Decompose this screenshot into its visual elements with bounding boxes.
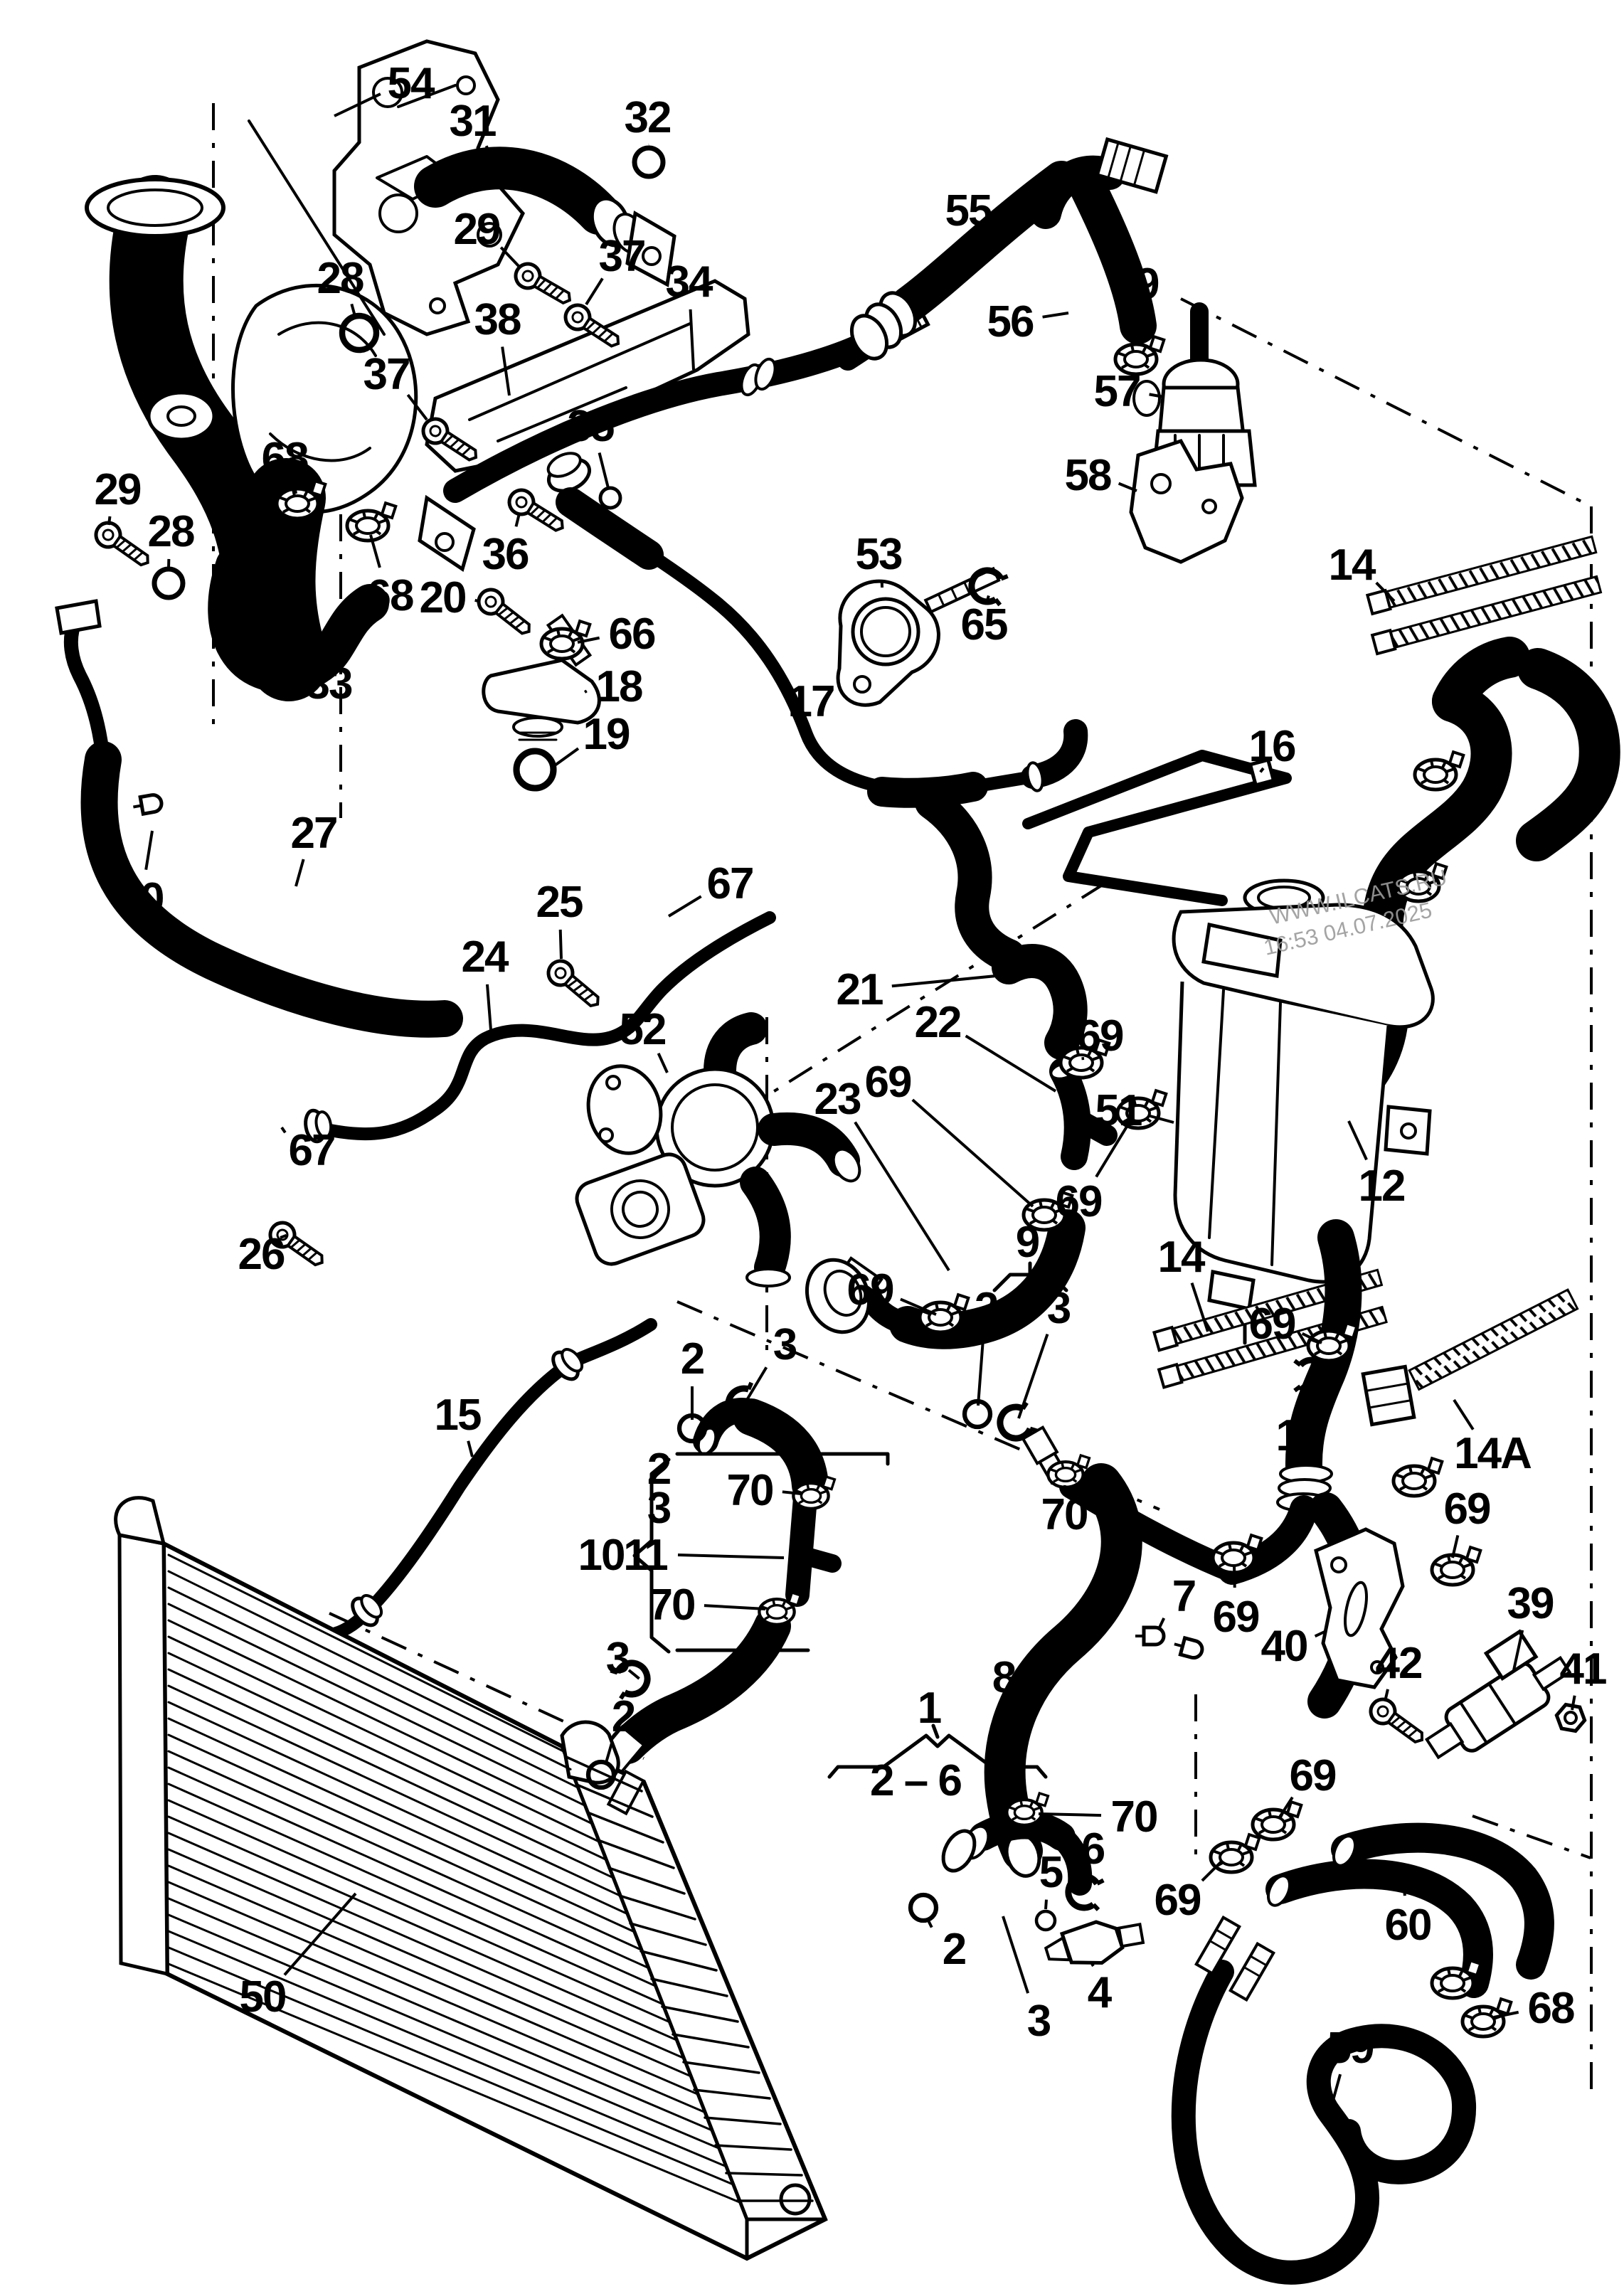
callout-55: 55	[945, 186, 992, 235]
pipe-15	[330, 1324, 651, 1635]
sclamp-instance	[1463, 1999, 1511, 2036]
diagram-canvas: 5431322928373438373536682928336820661819…	[0, 0, 1624, 2289]
hose-59	[1184, 1918, 1464, 2273]
callout-42: 42	[1376, 1639, 1422, 1688]
callout-70: 70	[1111, 1793, 1157, 1842]
callout-31: 31	[450, 97, 496, 146]
callout-14: 14	[1158, 1233, 1206, 1282]
oring-instance	[516, 751, 553, 788]
conduit-14A	[1363, 1290, 1577, 1425]
callout-68: 68	[1528, 1984, 1574, 2033]
callout-leader	[339, 651, 340, 656]
pipe-16	[1028, 755, 1286, 901]
callout-17: 17	[788, 677, 834, 726]
callout-3: 3	[1027, 1997, 1051, 2046]
callout-69: 69	[1249, 1300, 1295, 1349]
callout-22: 22	[915, 998, 961, 1047]
callout-leader	[1036, 1673, 1047, 1674]
callout-3: 3	[647, 1484, 671, 1533]
sclamp-instance	[1253, 1802, 1301, 1839]
callout-leader	[561, 930, 561, 959]
callout-20: 20	[420, 573, 466, 622]
callout-14A: 14A	[1454, 1429, 1532, 1478]
callout-53: 53	[856, 530, 902, 579]
callout-leader	[282, 1127, 285, 1132]
callout-69: 69	[1056, 1177, 1102, 1226]
oring-instance	[600, 488, 620, 508]
callout-69: 69	[1077, 1011, 1123, 1061]
callout-35: 35	[568, 402, 614, 451]
callout-68: 68	[367, 571, 413, 620]
callout-leader	[855, 1122, 949, 1270]
callout-leader	[806, 729, 807, 737]
callout-leader	[978, 1336, 983, 1406]
callout-29: 29	[454, 205, 500, 254]
callout-14: 14	[1329, 541, 1376, 590]
callout-leader	[1039, 1814, 1101, 1815]
callout-leader	[475, 600, 478, 601]
spring-bands-14-top	[1362, 535, 1607, 654]
callout-18: 18	[596, 662, 642, 711]
callout-29: 29	[95, 465, 141, 514]
callout-leader	[928, 1921, 932, 1928]
callout-leader	[109, 516, 110, 525]
callout-2: 2	[943, 1925, 965, 1974]
hose-55-56-pump-57	[845, 139, 1255, 562]
screw-instance	[474, 585, 536, 641]
callout-39: 39	[1507, 1579, 1554, 1628]
callout-21: 21	[837, 965, 883, 1014]
callout-28: 28	[148, 507, 194, 556]
callout-leader	[1234, 1565, 1235, 1588]
callout-3: 3	[1047, 1284, 1071, 1333]
sclamp-instance	[1432, 1547, 1480, 1585]
callout-58: 58	[1065, 451, 1111, 500]
callout-67: 67	[707, 859, 753, 908]
callout-26: 26	[238, 1230, 285, 1279]
callout-16: 16	[1249, 722, 1295, 771]
callout-leader	[1159, 1618, 1164, 1627]
oring-instance	[911, 1895, 936, 1921]
oring-instance	[1036, 1911, 1055, 1930]
callout-19: 19	[583, 710, 630, 759]
callout-70: 70	[649, 1581, 695, 1630]
callout-leader	[629, 1670, 639, 1679]
callout-69: 69	[847, 1265, 893, 1315]
callout-12: 12	[1359, 1162, 1405, 1211]
callout-1: 1	[918, 1684, 941, 1733]
callout-leader	[1019, 1334, 1047, 1418]
callout-leader	[913, 1100, 1033, 1206]
clip-instance	[132, 794, 163, 816]
callout-2 – 6: 2 – 6	[870, 1756, 961, 1805]
callout-leader	[966, 1036, 1056, 1091]
callout-leader	[468, 1441, 472, 1457]
callout-65: 65	[961, 600, 1007, 649]
callout-37: 37	[363, 350, 410, 399]
callout-leader	[704, 1605, 765, 1609]
callout-32: 32	[625, 93, 671, 142]
callout-69: 69	[865, 1058, 911, 1107]
radiator-50	[116, 1498, 825, 2258]
callout-67: 67	[289, 1126, 335, 1175]
callout-28: 28	[317, 254, 363, 303]
callout-25: 25	[536, 878, 583, 927]
thermostat-52	[572, 1029, 865, 1286]
callout-52: 52	[620, 1005, 666, 1054]
callout-6: 6	[1081, 1825, 1105, 1874]
callout-66: 66	[609, 610, 655, 659]
callout-leader	[294, 484, 296, 494]
callout-9: 9	[1016, 1218, 1039, 1267]
screw-instance	[511, 260, 576, 311]
callout-3: 3	[773, 1320, 797, 1369]
callout-leader	[1003, 1916, 1028, 1993]
callout-41: 41	[1560, 1645, 1606, 1694]
callout-2: 2	[681, 1334, 704, 1384]
callout-69: 69	[1444, 1485, 1490, 1534]
callout-leader	[585, 691, 587, 692]
callout-leader	[146, 831, 152, 870]
callout-8: 8	[992, 1653, 1016, 1702]
screw-instance	[1366, 1694, 1429, 1749]
parts-diagram-page: 5431322928373438373536682928336820661819…	[0, 0, 1624, 2289]
callout-4: 4	[1088, 1968, 1113, 2017]
screw-instance	[543, 956, 605, 1014]
callout-leader	[1092, 1964, 1093, 1966]
callout-leader	[296, 859, 304, 886]
callout-50: 50	[240, 1972, 286, 2022]
oring-instance	[635, 148, 663, 176]
callout-11: 11	[623, 1531, 667, 1580]
callout-38: 38	[474, 295, 521, 344]
callout-leader	[782, 1492, 801, 1494]
callout-leader	[555, 748, 578, 765]
callout-7: 7	[1172, 1572, 1195, 1621]
screw-instance	[91, 518, 154, 573]
callout-leader	[1086, 1876, 1086, 1884]
callout-69: 69	[1213, 1593, 1259, 1642]
callout-leader	[1454, 1400, 1473, 1430]
callout-37: 37	[599, 232, 645, 281]
callout-27: 27	[291, 809, 337, 858]
valve-39	[1405, 1621, 1577, 1770]
clip-instance	[1172, 1636, 1204, 1660]
callout-60: 60	[1385, 1901, 1431, 1950]
callout-3: 3	[606, 1634, 630, 1683]
callout-33: 33	[306, 659, 352, 708]
callout-69: 69	[1113, 260, 1159, 309]
callout-23: 23	[814, 1075, 861, 1124]
oring-instance	[154, 569, 183, 598]
callout-leader	[659, 1053, 667, 1073]
callout-leader	[501, 248, 519, 267]
sclamp-instance	[1415, 752, 1463, 790]
callout-54: 54	[388, 59, 435, 108]
callout-69: 69	[1155, 1876, 1201, 1925]
nut-instance	[1554, 1704, 1586, 1732]
callout-leader	[678, 1555, 784, 1558]
callout-leader	[516, 514, 519, 526]
callout-51: 51	[1095, 1086, 1142, 1135]
callout-2: 2	[612, 1692, 635, 1741]
clip-instance	[1135, 1627, 1164, 1645]
callout-70: 70	[727, 1466, 773, 1515]
sclamp-instance	[759, 1593, 800, 1625]
callout-leader	[600, 452, 608, 488]
temp-sensor-4	[1043, 1915, 1145, 1972]
callout-59: 59	[1327, 2024, 1374, 2073]
callout-13: 13	[1276, 1411, 1322, 1460]
callout-15: 15	[435, 1391, 481, 1440]
callout-10: 10	[578, 1531, 625, 1580]
sclamp-instance	[1394, 1458, 1442, 1496]
callout-leader	[586, 278, 603, 304]
callout-2: 2	[975, 1284, 997, 1333]
callout-57: 57	[1094, 367, 1140, 416]
callout-30: 30	[117, 874, 164, 923]
callout-leader	[1046, 1900, 1046, 1909]
callout-leader	[1043, 313, 1068, 317]
callout-68: 68	[262, 434, 308, 483]
callout-34: 34	[666, 257, 713, 307]
callout-leader	[669, 896, 701, 916]
callout-24: 24	[462, 933, 509, 982]
callout-69: 69	[1290, 1751, 1336, 1800]
callout-56: 56	[987, 297, 1034, 346]
callout-5: 5	[1039, 1848, 1063, 1897]
callout-70: 70	[1041, 1490, 1088, 1539]
callout-40: 40	[1261, 1622, 1307, 1671]
callout-36: 36	[482, 530, 529, 579]
callout-leader	[487, 984, 491, 1030]
callout-leader	[1404, 1885, 1405, 1896]
